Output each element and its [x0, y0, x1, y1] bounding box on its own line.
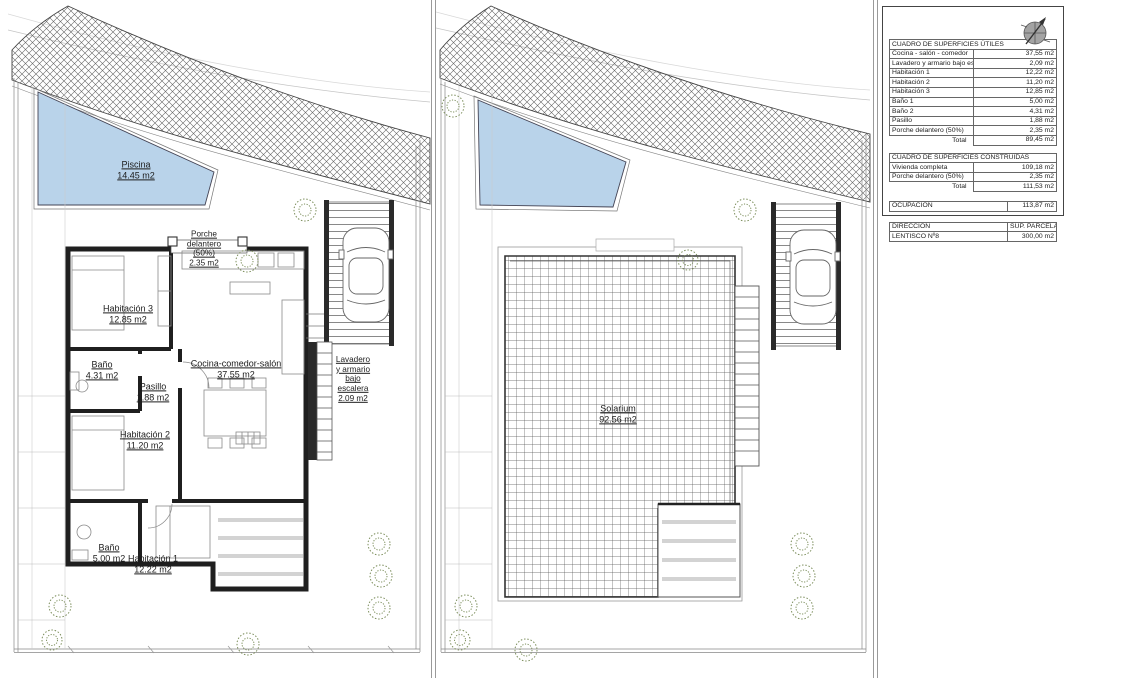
roof-terrace: [658, 504, 740, 597]
solarium-label: Solarium 92.56 m2: [599, 403, 637, 424]
car-icon: [339, 228, 393, 322]
house-outer-wall: [68, 249, 306, 589]
table-row: Pasillo1,88 m2: [890, 116, 1057, 126]
driveway-wall-right: [836, 202, 841, 350]
table-row: LENTISCO Nº8300,00 m2: [890, 232, 1057, 242]
dimension-ticks: [68, 646, 394, 653]
laundry-label: Lavadero y armario bajo escalera 2.09 m2: [336, 355, 370, 403]
table-row: Baño 15,00 m2: [890, 97, 1057, 107]
table-row: DIRECCIÓNSUP. PARCELA: [890, 222, 1057, 232]
room-label-hab1: Habitación 1 12.22 m2: [128, 553, 178, 574]
table-row: Lavadero y armario bajo escalera2,09 m2: [890, 59, 1057, 69]
staircase: [735, 286, 759, 466]
sheet-divider: [431, 0, 436, 678]
driveway-wall-left: [324, 200, 329, 346]
walkway-steps: [445, 396, 492, 620]
porch-column: [238, 237, 247, 246]
room-label-hab3: Habitación 3 12.85 m2: [103, 303, 153, 324]
walkway-steps: [18, 396, 65, 620]
table-row: Porche delantero (50%)2,35 m2: [890, 172, 1057, 182]
table-row: Habitación 112,22 m2: [890, 68, 1057, 78]
useful-areas-table: CUADRO DE SUPERFICIES ÚTILES Cocina - sa…: [889, 39, 1057, 146]
room-label-banyo1: Baño 5.00 m2: [93, 542, 126, 563]
room-label-banyo2: Baño 4.31 m2: [86, 359, 119, 380]
table-total-row: Total111,53 m2: [890, 182, 1057, 192]
ground-floor-linework: [8, 4, 432, 664]
summary-panel: CUADRO DE SUPERFICIES ÚTILES Cocina - sa…: [882, 6, 1064, 216]
driveway-wall-left: [771, 202, 776, 350]
address-parcel-table: DIRECCIÓNSUP. PARCELA LENTISCO Nº8300,00…: [889, 222, 1057, 242]
room-label-pasillo: Pasillo 1.88 m2: [137, 381, 170, 402]
staircase: [317, 342, 332, 460]
table-row: Habitación 211,20 m2: [890, 78, 1057, 88]
table-row: Vivienda completa109,18 m2: [890, 163, 1057, 173]
north-arrow-icon: [1018, 12, 1054, 50]
table-row: Baño 24,31 m2: [890, 107, 1057, 117]
car-icon: [786, 230, 840, 324]
porch-slab: [596, 239, 674, 251]
driveway-wall-right: [389, 200, 394, 346]
door-gap: [148, 498, 172, 504]
table-row: Porche delantero (50%)2,35 m2: [890, 126, 1057, 136]
porch-label: Porche delantero (50%) 2.35 m2: [187, 230, 221, 269]
sheet-divider: [873, 0, 878, 678]
door-gap: [137, 354, 143, 376]
stair-wall: [308, 342, 317, 460]
ground-floor-plan: Piscina 14.45 m2 Porche delantero (50%) …: [8, 4, 432, 664]
porch-column: [168, 237, 177, 246]
table-row: OCUPACIÓN113,87 m2: [890, 201, 1057, 211]
architectural-sheet: Piscina 14.45 m2 Porche delantero (50%) …: [0, 0, 1125, 678]
room-label-hab2: Habitación 2 11.20 m2: [120, 429, 170, 450]
door-gap: [177, 362, 183, 388]
table-total-row: Total89,45 m2: [890, 135, 1057, 145]
roof-linework: [436, 4, 872, 664]
pool-label: Piscina 14.45 m2: [117, 159, 155, 180]
roof-plan: Solarium 92.56 m2: [436, 4, 872, 664]
built-areas-table: CUADRO DE SUPERFICIES CONSTRUIDAS Vivien…: [889, 153, 1057, 192]
table-title: CUADRO DE SUPERFICIES CONSTRUIDAS: [890, 153, 1057, 163]
entry-steps: [306, 314, 324, 338]
room-label-salon: Cocina-comedor-salón 37.55 m2: [191, 358, 282, 379]
table-row: Cocina - salón - comedor37,55 m2: [890, 49, 1057, 59]
occupation-table: OCUPACIÓN113,87 m2: [889, 201, 1057, 212]
table-row: Habitación 312,85 m2: [890, 87, 1057, 97]
